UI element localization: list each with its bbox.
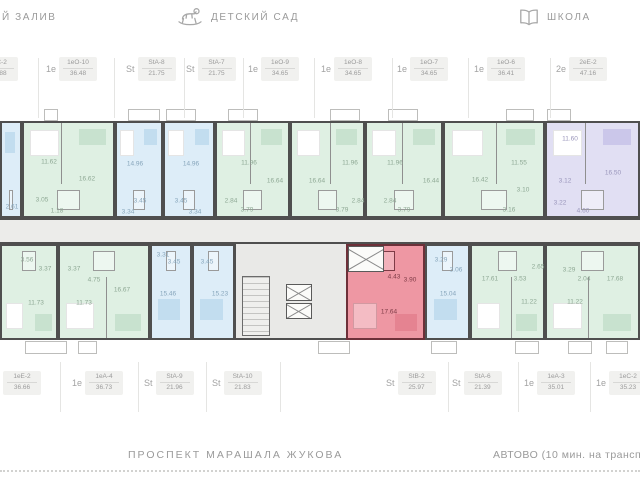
balcony [318, 341, 350, 354]
room-area-label: 14.96 [183, 161, 199, 168]
room-area-label: 3.34 [189, 209, 202, 216]
unit-code-box: 1еА-436.73 [85, 371, 123, 395]
furniture-kitchen [79, 129, 106, 146]
furniture [5, 132, 15, 152]
room-area-label: 15.46 [160, 291, 176, 298]
bathroom [318, 190, 336, 210]
furniture-bed [452, 130, 483, 156]
room-area-label: 3.37 [68, 266, 81, 273]
unit-type: St [126, 64, 135, 74]
unit-code-box: 1еА-335.01 [537, 371, 575, 395]
furniture-bed [372, 130, 396, 156]
unit-area: 34.65 [338, 70, 368, 78]
room-divider [250, 123, 251, 184]
unit-code: StA-8 [142, 59, 172, 69]
unit-type: St [212, 378, 221, 388]
unit-type: 1е [72, 378, 82, 388]
vent-shaft [348, 246, 384, 272]
room-area-label: 3.79 [398, 207, 411, 214]
balcony [330, 109, 360, 121]
furniture-bed [6, 303, 23, 329]
room-area-label: 16.64 [267, 178, 283, 185]
unit-area: 21.83 [228, 384, 258, 392]
balcony [606, 341, 628, 354]
balcony [44, 109, 58, 121]
unit-code-box: StA-821.75 [138, 57, 176, 81]
room-area-label: 11.96 [342, 160, 358, 167]
room-area-label: 3.53 [514, 276, 527, 283]
unit-area: 35.23 [613, 384, 640, 392]
room-area-label: 4.43 [388, 274, 401, 281]
separator-line [518, 362, 519, 412]
apartment-edge-top[interactable]: 2.61 [0, 121, 22, 218]
unit-label-StA-7[interactable]: StStA-721.75 [186, 57, 236, 81]
unit-label-StB-2[interactable]: StStB-225.97 [386, 371, 436, 395]
balcony [515, 341, 539, 354]
bathroom [93, 251, 116, 271]
room-area-label: 3.79 [336, 207, 349, 214]
unit-type: St [186, 64, 195, 74]
elevator-core [234, 244, 350, 340]
unit-code: 2еЕ-2 [573, 59, 603, 69]
room-area-label: 2.84 [225, 198, 238, 205]
unit-code-box: 1еО-1036.48 [59, 57, 97, 81]
separator-line [468, 58, 469, 118]
room-area-label: 11.60 [562, 136, 578, 143]
room-area-label: 3.06 [450, 267, 463, 274]
unit-type: St [386, 378, 395, 388]
room-area-label: 3.16 [503, 207, 516, 214]
room-area-label: 3.29 [435, 257, 448, 264]
apartment-1еС-2[interactable]: 3.292.0411.2217.68 [545, 244, 640, 340]
unit-label-StA-8[interactable]: StStA-821.75 [126, 57, 176, 81]
unit-code: StB-2 [402, 373, 432, 383]
room-area-label: 2.65 [532, 264, 545, 271]
unit-code: StA-6 [468, 373, 498, 383]
room-area-label: 3.05 [36, 197, 49, 204]
furniture-bed [553, 303, 582, 329]
furniture-kitchen [413, 129, 435, 146]
room-area-label: 11.73 [28, 300, 44, 307]
unit-label-1еО-7[interactable]: 1е1еО-734.65 [397, 57, 448, 81]
metro-label-avtovo: АВТОВО (10 мин. на трансп [493, 449, 640, 461]
unit-code-box: StA-921.96 [156, 371, 194, 395]
unit-label-1еС-2[interactable]: 1е1еС-235.23 [596, 371, 640, 395]
balcony [166, 109, 196, 121]
furniture-bed [297, 130, 320, 156]
furniture [158, 299, 180, 319]
room-area-label: 3.45 [134, 198, 147, 205]
room-divider [106, 277, 107, 338]
unit-code-box: 1еЕ-236.66 [3, 371, 41, 395]
room-divider [585, 123, 586, 184]
furniture-bed [30, 130, 58, 156]
room-area-label: 3.31 [157, 252, 170, 259]
room-area-label: 3.29 [563, 267, 576, 274]
unit-label-2еЕ-2[interactable]: 2е2еЕ-247.16 [556, 57, 607, 81]
unit-type: St [452, 378, 461, 388]
unit-area: 36.48 [63, 70, 93, 78]
room-area-label: 11.55 [511, 160, 527, 167]
unit-area: 47.16 [573, 70, 603, 78]
unit-area: 25.97 [402, 384, 432, 392]
unit-label-StC-2[interactable]: StStC-225.88 [0, 57, 18, 81]
room-area-label: 4.75 [88, 277, 101, 284]
unit-label-StA-10[interactable]: StStA-1021.83 [212, 371, 262, 395]
unit-code: StA-7 [202, 59, 232, 69]
elevator [286, 303, 312, 319]
room-area-label: 3.79 [241, 207, 254, 214]
room-divider [330, 123, 331, 184]
furniture-bed [477, 303, 500, 329]
unit-area: 36.73 [89, 384, 119, 392]
room-area-label: 3.45 [201, 259, 214, 266]
furniture-bed [353, 303, 377, 329]
unit-label-1еЕ-2[interactable]: 1е1еЕ-236.66 [0, 371, 41, 395]
unit-code: 1еА-4 [89, 373, 119, 383]
room-area-label: 3.10 [517, 187, 530, 194]
separator-line [114, 58, 115, 118]
apartment-1еО-6[interactable]: 16.4211.553.103.16 [443, 121, 545, 218]
unit-label-1еА-3[interactable]: 1е1еА-335.01 [524, 371, 575, 395]
road-dashed-line [0, 470, 640, 472]
room-area-label: 2.84 [352, 198, 365, 205]
unit-label-1еА-4[interactable]: 1е1еА-436.73 [72, 371, 123, 395]
unit-label-1еО-8[interactable]: 1е1еО-834.65 [321, 57, 372, 81]
unit-code: 1еЕ-2 [7, 373, 37, 383]
apartment-1еА-4[interactable]: 3.374.7511.7316.67 [58, 244, 150, 340]
separator-line [38, 58, 39, 118]
room-area-label: 15.04 [440, 291, 456, 298]
room-divider [511, 277, 512, 338]
room-area-label: 16.44 [423, 178, 439, 185]
unit-type: 2е [556, 64, 566, 74]
unit-type: 1е [321, 64, 331, 74]
balcony [506, 109, 534, 121]
unit-area: 35.01 [541, 384, 571, 392]
room-area-label: 16.42 [472, 177, 488, 184]
furniture [434, 299, 458, 319]
unit-code-box: 2еЕ-247.16 [569, 57, 607, 81]
room-area-label: 16.67 [114, 287, 130, 294]
furniture-bed [120, 130, 134, 156]
bathroom [581, 251, 605, 271]
balcony [568, 341, 592, 354]
unit-type: 1е [248, 64, 258, 74]
room-area-label: 11.22 [521, 299, 537, 306]
furniture-kitchen [506, 129, 535, 146]
separator-line [206, 362, 207, 412]
unit-area: 21.39 [468, 384, 498, 392]
unit-code: StA-10 [228, 373, 258, 383]
unit-code: 1еА-3 [541, 373, 571, 383]
balcony [25, 341, 67, 354]
room-area-label: 3.45 [168, 259, 181, 266]
unit-area: 36.41 [491, 70, 521, 78]
separator-line [243, 58, 244, 118]
furniture-kitchen [336, 129, 357, 146]
separator-line [314, 58, 315, 118]
unit-label-1еО-10[interactable]: 1е1еО-1036.48 [46, 57, 97, 81]
unit-area: 25.88 [0, 70, 14, 78]
furniture-kitchen [261, 129, 282, 146]
unit-area: 34.65 [265, 70, 295, 78]
apartment-1еО-7[interactable]: 11.9616.442.843.79 [365, 121, 443, 218]
unit-type: 1е [524, 378, 534, 388]
apartment-1еА-3[interactable]: 17.613.532.6511.22 [470, 244, 545, 340]
separator-line [138, 362, 139, 412]
apartment-1еО-10[interactable]: 11.6216.623.051.18 [22, 121, 115, 218]
room-area-label: 16.62 [79, 176, 95, 183]
furniture [200, 299, 223, 319]
room-area-label: 1.18 [51, 208, 64, 215]
room-area-label: 2.61 [6, 204, 19, 211]
room-area-label: 3.22 [554, 200, 567, 207]
room-area-label: 16.64 [309, 178, 325, 185]
room-area-label: 16.50 [605, 170, 621, 177]
separator-line [448, 362, 449, 412]
apartment-StA-6[interactable]: 3.293.0615.04 [425, 244, 470, 340]
unit-type: 1е [46, 64, 56, 74]
unit-code-box: StB-225.97 [398, 371, 436, 395]
unit-code: 1еО-9 [265, 59, 295, 69]
separator-line [590, 362, 591, 412]
furniture-kitchen [516, 314, 537, 331]
unit-label-StA-6[interactable]: StStA-621.39 [452, 371, 502, 395]
room-area-label: 3.37 [39, 266, 52, 273]
room-area-label: 14.96 [127, 161, 143, 168]
bathroom [498, 251, 516, 271]
balcony [128, 109, 160, 121]
balcony [78, 341, 97, 354]
room-area-label: 17.68 [607, 276, 623, 283]
unit-type: 1е [397, 64, 407, 74]
room-area-label: 3.34 [122, 209, 135, 216]
unit-code-box: StA-621.39 [464, 371, 502, 395]
unit-code: 1еО-7 [414, 59, 444, 69]
furniture-bed [553, 130, 582, 156]
separator-line [184, 58, 185, 118]
apartment-StA-9[interactable]: 3.313.4515.46 [150, 244, 192, 340]
room-area-label: 11.96 [241, 160, 257, 167]
furniture-kitchen [395, 314, 418, 331]
unit-code: 1еО-10 [63, 59, 93, 69]
apartment-StA-7[interactable]: 14.963.453.34 [163, 121, 215, 218]
unit-code-box: StA-1021.83 [224, 371, 262, 395]
staircase [242, 276, 270, 336]
apartment-StA-8[interactable]: 14.963.453.34 [115, 121, 163, 218]
room-area-label: 2.04 [578, 276, 591, 283]
unit-code-box: 1еО-834.65 [334, 57, 372, 81]
furniture-bed [168, 130, 183, 156]
separator-line [280, 362, 281, 412]
unit-code-box: StA-721.75 [198, 57, 236, 81]
unit-label-StA-9[interactable]: StStA-921.96 [144, 371, 194, 395]
furniture-kitchen [603, 129, 630, 146]
apartment-1еО-8[interactable]: 16.6411.962.843.79 [290, 121, 365, 218]
unit-type: 1е [596, 378, 606, 388]
room-area-label: 15.23 [212, 291, 228, 298]
unit-code-box: 1еС-235.23 [609, 371, 640, 395]
furniture-kitchen [603, 314, 630, 331]
separator-line [550, 58, 551, 118]
unit-area: 21.75 [142, 70, 172, 78]
unit-code: StC-2 [0, 59, 14, 69]
elevator [286, 284, 312, 301]
separator-line [392, 58, 393, 118]
room-area-label: 11.62 [41, 159, 57, 166]
room-area-label: 17.64 [381, 309, 397, 316]
unit-label-1еО-6[interactable]: 1е1еО-636.41 [474, 57, 525, 81]
furniture-bed [66, 303, 94, 329]
room-divider [402, 123, 403, 184]
separator-line [60, 362, 61, 412]
unit-code: 1еС-2 [613, 373, 640, 383]
street-label-prospekt: ПРОСПЕКТ МАРАШАЛА ЖУКОВА [128, 449, 343, 461]
unit-code-box: StC-225.88 [0, 57, 18, 81]
unit-type: St [144, 378, 153, 388]
room-divider [496, 123, 497, 184]
room-area-label: 11.96 [387, 160, 403, 167]
apartment-StA-10[interactable]: 3.4515.23 [192, 244, 235, 340]
unit-code: StA-9 [160, 373, 190, 383]
unit-area: 34.65 [414, 70, 444, 78]
unit-type: 1е [474, 64, 484, 74]
room-area-label: 11.73 [76, 300, 92, 307]
room-area-label: 4.60 [577, 208, 590, 215]
unit-area: 36.66 [7, 384, 37, 392]
unit-code-box: 1еО-636.41 [487, 57, 525, 81]
apartment-2еЕ-2[interactable]: 11.6016.503.123.224.60 [545, 121, 640, 218]
room-area-label: 3.45 [175, 198, 188, 205]
unit-code-box: 1еО-734.65 [410, 57, 448, 81]
room-area-label: 3.56 [21, 257, 34, 264]
room-divider [588, 277, 589, 338]
floor-plan-page: Й ЗАЛИВ ДЕТСКИЙ САД ШКОЛА [0, 0, 640, 480]
unit-code: 1еО-8 [338, 59, 368, 69]
unit-label-1еО-9[interactable]: 1е1еО-934.65 [248, 57, 299, 81]
furniture-kitchen [35, 314, 51, 331]
corridor [0, 218, 640, 244]
apartment-1еЕ-2[interactable]: 3.563.3711.73 [0, 244, 58, 340]
room-area-label: 2.84 [384, 198, 397, 205]
furniture-kitchen [115, 314, 141, 331]
unit-area: 21.75 [202, 70, 232, 78]
furniture-kitchen [144, 129, 157, 146]
room-area-label: 17.61 [482, 276, 498, 283]
room-area-label: 11.22 [567, 299, 583, 306]
furniture-kitchen [195, 129, 209, 146]
unit-area: 21.96 [160, 384, 190, 392]
furniture-bed [222, 130, 245, 156]
unit-code: 1еО-6 [491, 59, 521, 69]
unit-code-box: 1еО-934.65 [261, 57, 299, 81]
room-area-label: 3.90 [404, 277, 417, 284]
apartment-1еО-9[interactable]: 11.9616.642.843.79 [215, 121, 290, 218]
balcony [431, 341, 457, 354]
room-area-label: 3.12 [559, 178, 572, 185]
room-divider [61, 123, 62, 184]
